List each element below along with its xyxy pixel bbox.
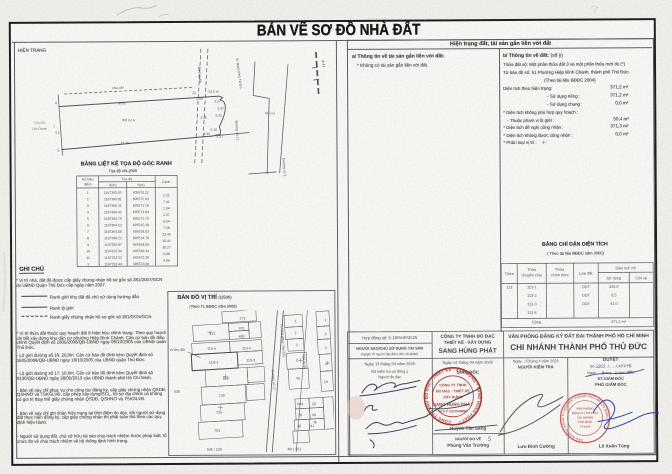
svg-text:605573.84: 605573.84 [133,210,149,214]
svg-text:5.17: 5.17 [216,135,223,139]
svg-text:9: 9 [87,243,89,247]
svg-text:ODT: ODT [582,302,591,306]
svg-text:thổ cư: thổ cư [265,111,275,115]
svg-text:chuyển chia: chuyển chia [522,273,543,277]
svg-text:23.46: 23.46 [162,232,171,236]
svg-text:113-3: 113-3 [246,358,255,362]
svg-text:Đ. Rạch Phử Tê lớn: Đ. Rạch Phử Tê lớn [235,58,243,89]
svg-text:1197366.92: 1197366.92 [104,210,122,214]
svg-text:113-1: 113-1 [527,285,536,289]
svg-text:6.54: 6.54 [163,219,170,223]
svg-text:19: 19 [324,380,328,384]
svg-text:TP.HCM: TP.HCM [580,425,591,429]
svg-text:Thửa: Thửa [527,268,537,272]
svg-text:2: 2 [325,332,327,336]
svg-text:7.28: 7.28 [163,226,170,230]
svg-text:X(m): X(m) [109,183,117,187]
svg-text:Ngày 14 tháng 04 năm 2025: Ngày 14 tháng 04 năm 2025 [442,360,493,365]
svg-text:Sử dụng: Sử dụng [606,276,621,280]
svg-text:Cạnh: Cạnh [162,180,170,184]
svg-text:Đường số 3: Đường số 3 [282,158,287,176]
svg-text:THỦ ĐỨC: THỦ ĐỨC [578,419,593,424]
svg-text:Tọa độ: Tọa độ [121,177,132,181]
svg-text:0.08: 0.08 [163,252,170,256]
svg-text:1.15: 1.15 [200,116,207,120]
svg-text:173: 173 [239,317,245,321]
svg-text:5: 5 [57,149,59,153]
svg-text:605515.28: 605515.28 [133,223,149,227]
svg-text:Lê Xuân Tùng: Lê Xuân Tùng [599,443,630,448]
svg-text:10.41: 10.41 [162,239,171,243]
svg-text:2.27: 2.27 [214,100,221,104]
svg-text:110-4: 110-4 [207,347,216,351]
svg-text:Phùng Văn Trường: Phùng Văn Trường [447,443,489,448]
svg-text:Số hiệu: Số hiệu [82,177,94,181]
svg-text:972: 972 [239,327,245,331]
svg-text:7.41: 7.41 [163,200,170,204]
svg-text:1197313.34: 1197313.34 [104,249,122,253]
svg-text:2.00: 2.00 [196,97,203,101]
svg-text:PHÓ GIÁM ĐỐC: PHÓ GIÁM ĐỐC [595,382,627,387]
svg-text:9x52: 9x52 [118,101,125,105]
svg-text:5: 5 [87,217,89,221]
svg-text:2.23: 2.23 [163,193,170,197]
svg-text:465: 465 [239,335,245,339]
svg-text:Đã kiểm tra và đồng ý: Đã kiểm tra và đồng ý [371,370,408,374]
svg-text:3: 3 [87,204,89,208]
svg-text:605549.34: 605549.34 [133,249,149,253]
svg-text:4a: 4a [296,376,300,380]
svg-text:1197364.08: 1197364.08 [104,230,122,234]
svg-text:VĂN PHÒNG: VĂN PHÒNG [576,406,594,411]
svg-text:13.5 m: 13.5 m [208,90,219,94]
svg-text:11: 11 [86,256,90,260]
svg-text:nhà cốn: nhà cốn [112,86,124,91]
svg-text:6: 6 [55,101,57,105]
svg-text:8: 8 [87,236,89,240]
svg-text:7: 7 [53,125,55,129]
svg-text:SANG HÙNG PHÁT: SANG HÙNG PHÁT [439,346,497,355]
svg-text:605571.28: 605571.28 [133,204,149,208]
svg-text:1: 1 [294,319,296,323]
svg-text:Lân Chanh: Lân Chanh [32,127,47,131]
svg-text:858: 858 [223,377,229,381]
svg-text:lộ 43: lộ 43 [321,60,326,68]
svg-text:Cộng .: Cộng . [532,320,543,324]
svg-text:Đường đất: Đường đất [197,67,202,84]
svg-text:Y(m): Y(m) [137,183,145,187]
svg-text:1197366.81: 1197366.81 [104,197,122,201]
svg-text:NGƯỜI SAO/CHỦ SỬ DỤNG TÀI SẢN: NGƯỜI SAO/CHỦ SỬ DỤNG TÀI SẢN [356,345,423,350]
svg-text:2.37: 2.37 [163,213,170,217]
svg-text:505 / 230: 505 / 230 [207,448,222,452]
svg-text:7: 7 [87,230,89,234]
svg-text:12: 12 [192,91,196,95]
svg-text:Người đo đạc: Người đo đạc [378,375,401,379]
svg-text:4: 4 [325,362,327,366]
svg-text:3.37: 3.37 [217,107,224,111]
svg-text:Hợp đồng số: 5-18/SHP/2025: Hợp đồng số: 5-18/SHP/2025 [362,335,418,340]
svg-text:1197346.22: 1197346.22 [104,236,122,240]
svg-text:6: 6 [87,223,89,227]
svg-text:Ngày…/Cháng 4 năm 2025: Ngày…/Cháng 4 năm 2025 [513,359,559,363]
svg-text:Loại đất: Loại đất [579,272,593,276]
svg-text:326.0: 326.0 [609,285,619,289]
svg-text:Thửa: Thửa [505,272,515,276]
svg-text:113-3: 113-3 [527,302,536,306]
svg-text:4.44: 4.44 [203,132,210,136]
svg-text:Diện tích m²: Diện tích m² [615,266,636,270]
svg-text:KT.GIÁM ĐỐC: KT.GIÁM ĐỐC [598,376,625,381]
svg-text:3: 3 [296,343,298,347]
svg-text:605518.03: 605518.03 [133,230,149,234]
svg-text:1197312.52: 1197312.52 [104,256,122,260]
svg-text:M.S.T: 0317546898: M.S.T: 0317546898 [439,409,467,413]
svg-text:23.46: 23.46 [120,141,129,145]
svg-text:ĐO ĐẠC - THIẾT KẾ: ĐO ĐẠC - THIẾT KẾ [436,388,470,393]
svg-text:1197320.87: 1197320.87 [104,243,122,247]
svg-text:605570.28: 605570.28 [133,262,149,266]
svg-text:30.27: 30.27 [162,245,171,249]
svg-text:1.04: 1.04 [163,206,170,210]
svg-text:113-2: 113-2 [242,346,251,350]
svg-text:3.31: 3.31 [215,114,222,118]
svg-text:6.06: 6.06 [163,258,170,262]
svg-text:thổ cư a: thổ cư a [122,118,135,122]
svg-text:536: 536 [174,390,180,394]
svg-text:113-4: 113-4 [527,311,536,315]
svg-text:C.ty S/X: C.ty S/X [34,121,45,125]
svg-text:605571.74: 605571.74 [133,217,149,221]
svg-text:DUYỆT: DUYỆT [603,355,619,362]
svg-text:Thửa: Thửa [555,268,565,272]
svg-text:605514.70: 605514.70 [133,236,149,240]
svg-text:CHI NHÁNH THÀNH PHỐ THỦ ĐỨC: CHI NHÁNH THÀNH PHỐ THỦ ĐỨC [510,340,647,352]
svg-text:28: 28 [298,413,302,417]
svg-text:1: 1 [87,262,89,266]
svg-text:605570.22: 605570.22 [133,191,149,195]
svg-text:20: 20 [312,402,316,406]
svg-text:10: 10 [86,249,90,253]
svg-text:CÔNG TY TNHH: CÔNG TY TNHH [439,382,467,387]
svg-text:753: 753 [214,429,220,433]
svg-text:VĂN PHÒNG ĐĂNG KÝ ĐẤT ĐAI THÀN: VĂN PHÒNG ĐĂNG KÝ ĐẤT ĐAI THÀNH PHỐ HỒ C… [508,331,649,340]
svg-text:1197364.75: 1197364.75 [104,217,122,221]
svg-text:113-2: 113-2 [527,294,536,298]
svg-text:Đường số 17: Đường số 17 [234,120,239,140]
svg-text:NGƯỜI ĐO VẼ: NGƯỜI ĐO VẼ [455,436,482,441]
svg-text:XÂY DỰNG: XÂY DỰNG [443,394,463,399]
svg-text:chính thức: chính thức [551,273,569,277]
svg-text:1197366.41: 1197366.41 [104,204,122,208]
svg-text:THIẾT KẾ - XÂY DỰNG: THIẾT KẾ - XÂY DỰNG [444,340,492,345]
svg-text:2: 2 [295,331,297,335]
svg-text:Còn lại: Còn lại [635,276,647,280]
svg-text:90: 90 [312,413,316,417]
svg-text:8.5: 8.5 [611,293,616,297]
svg-text:605572.26: 605572.26 [133,256,149,260]
svg-text:điểm: điểm [84,182,92,186]
svg-text:CÔNG TY TNHH ĐO ĐẠC: CÔNG TY TNHH ĐO ĐẠC [440,332,495,339]
svg-text:2: 2 [87,197,89,201]
svg-text:759: 759 [216,411,222,415]
svg-text:40/1 551: 40/1 551 [287,447,301,451]
svg-text:0.5: 0.5 [55,131,60,135]
svg-text:504: 504 [297,402,303,406]
svg-text:CHI NHÁNH: CHI NHÁNH [577,415,593,420]
svg-text:25: 25 [628,369,632,374]
svg-text:Lưu Đình Cường: Lưu Đình Cường [518,444,555,449]
svg-text:4: 4 [87,210,89,214]
svg-text:(ký/ghi rõ người đại diện cho: (ký/ghi rõ người đại diện cho số phận) [361,352,418,356]
svg-text:1197313.44: 1197313.44 [104,262,122,266]
svg-text:1197364.22: 1197364.22 [104,223,122,227]
svg-text:371,2 m²: 371,2 m² [611,320,627,324]
svg-text:Ngõ tự do: Ngõ tự do [302,354,307,369]
svg-text:113: 113 [506,285,512,289]
svg-text:Vt khu đất: Vt khu đất [170,348,185,352]
svg-text:41: 41 [310,424,314,428]
svg-text:2: 2 [296,358,298,362]
svg-text:5363: 5363 [596,364,607,370]
svg-text:113-1: 113-1 [209,360,220,365]
svg-text:ODT: ODT [582,294,591,298]
svg-text:605572.03: 605572.03 [133,197,149,201]
svg-text:605514.09: 605514.09 [133,243,149,247]
svg-text:3: 3 [325,346,327,350]
svg-text:1197363.55: 1197363.55 [104,191,122,195]
svg-text:135: 135 [219,394,225,398]
svg-text:40: 40 [297,424,301,428]
svg-text:112: 112 [210,332,216,336]
svg-text:5: 5 [487,436,492,444]
svg-text:ODT: ODT [582,285,591,289]
svg-text:1: 1 [324,318,326,322]
svg-text:NGƯỜI KIỂM TRA: NGƯỜI KIỂM TRA [518,364,554,369]
svg-text:1: 1 [87,191,89,195]
svg-text:Ngày 13 tháng 04 năm 2025: Ngày 13 tháng 04 năm 2025 [364,361,415,366]
svg-text:41.0: 41.0 [610,302,617,306]
svg-text:5.10: 5.10 [210,128,217,132]
